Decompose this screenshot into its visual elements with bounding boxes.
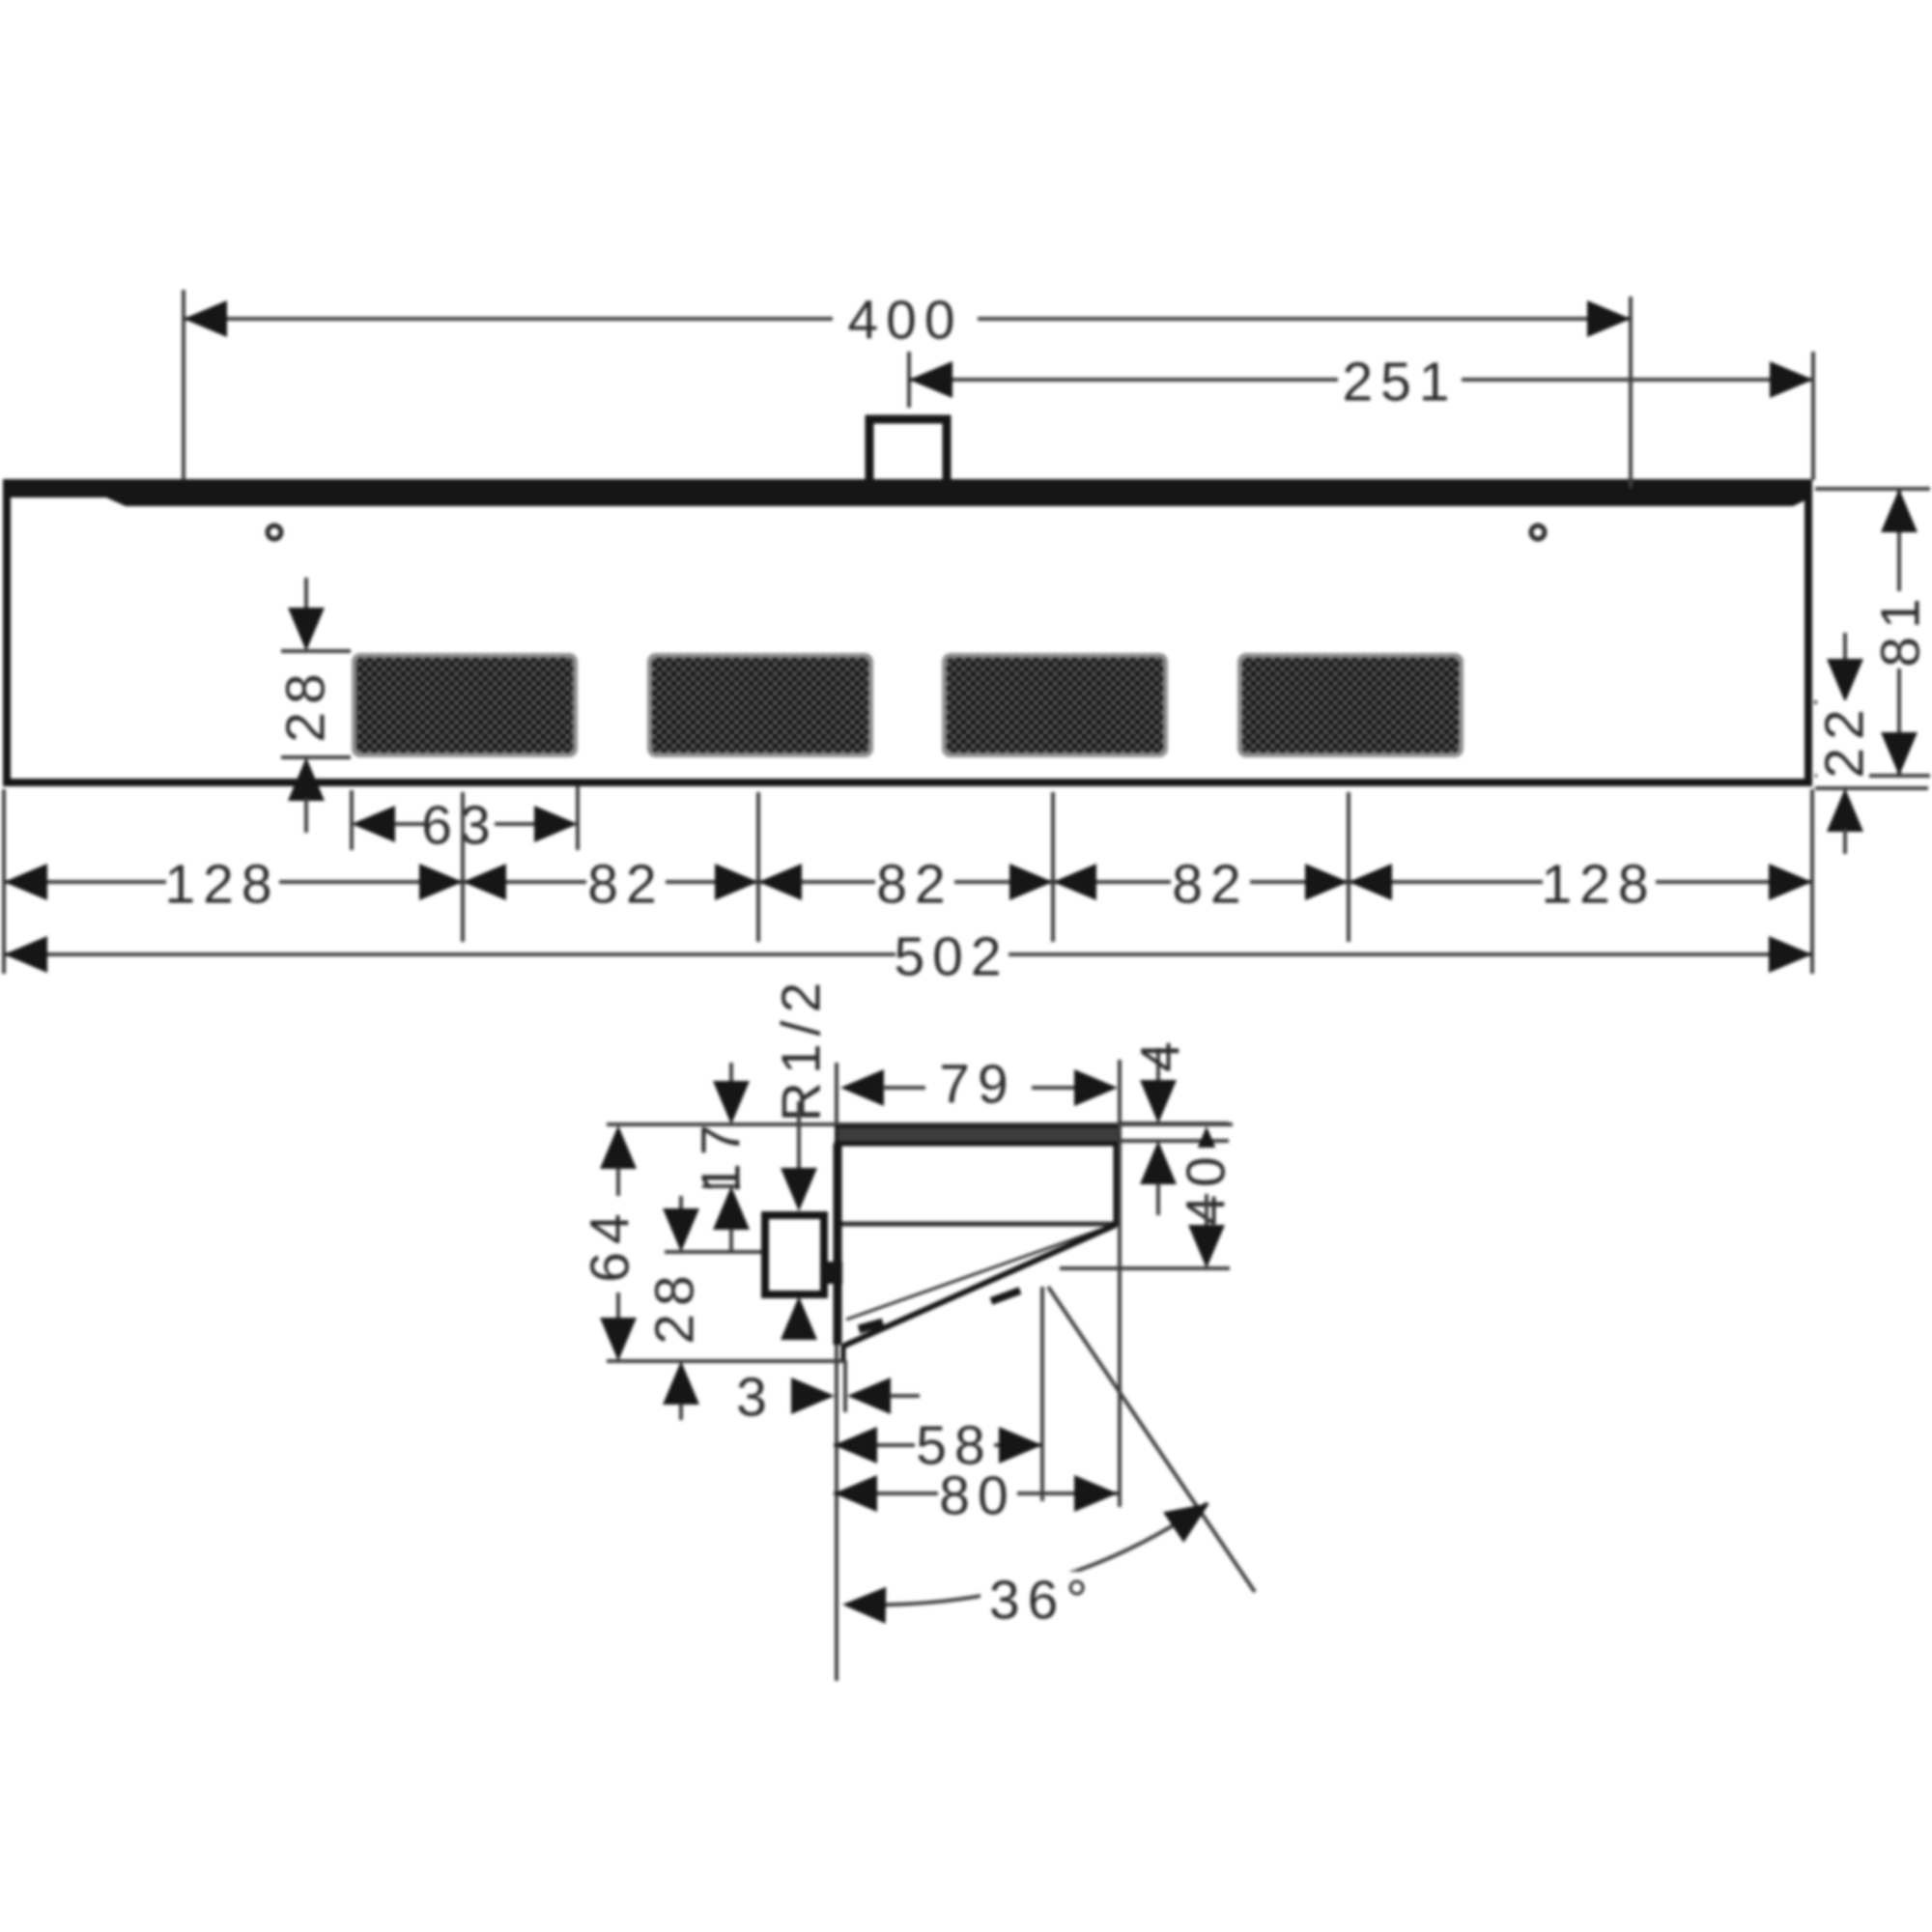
svg-text:36°: 36° bbox=[989, 1570, 1095, 1632]
svg-text:64: 64 bbox=[580, 1206, 641, 1282]
svg-text:17: 17 bbox=[691, 1117, 753, 1193]
svg-text:28: 28 bbox=[275, 666, 337, 742]
svg-text:81: 81 bbox=[1870, 590, 1932, 667]
svg-text:128: 128 bbox=[1541, 854, 1656, 916]
svg-text:400: 400 bbox=[847, 290, 962, 352]
svg-text:3: 3 bbox=[736, 1367, 775, 1429]
svg-text:82: 82 bbox=[876, 854, 952, 916]
svg-text:82: 82 bbox=[1172, 854, 1248, 916]
svg-text:80: 80 bbox=[939, 1465, 1015, 1527]
svg-text:R1/2: R1/2 bbox=[771, 975, 833, 1122]
svg-text:502: 502 bbox=[894, 926, 1009, 988]
svg-text:79: 79 bbox=[939, 1054, 1015, 1116]
svg-text:128: 128 bbox=[164, 854, 279, 916]
svg-text:4: 4 bbox=[1130, 1034, 1192, 1072]
svg-text:63: 63 bbox=[421, 795, 497, 857]
svg-text:82: 82 bbox=[587, 854, 664, 916]
svg-text:22: 22 bbox=[1814, 701, 1876, 778]
svg-text:251: 251 bbox=[1342, 352, 1457, 413]
svg-text:28: 28 bbox=[644, 1267, 706, 1344]
